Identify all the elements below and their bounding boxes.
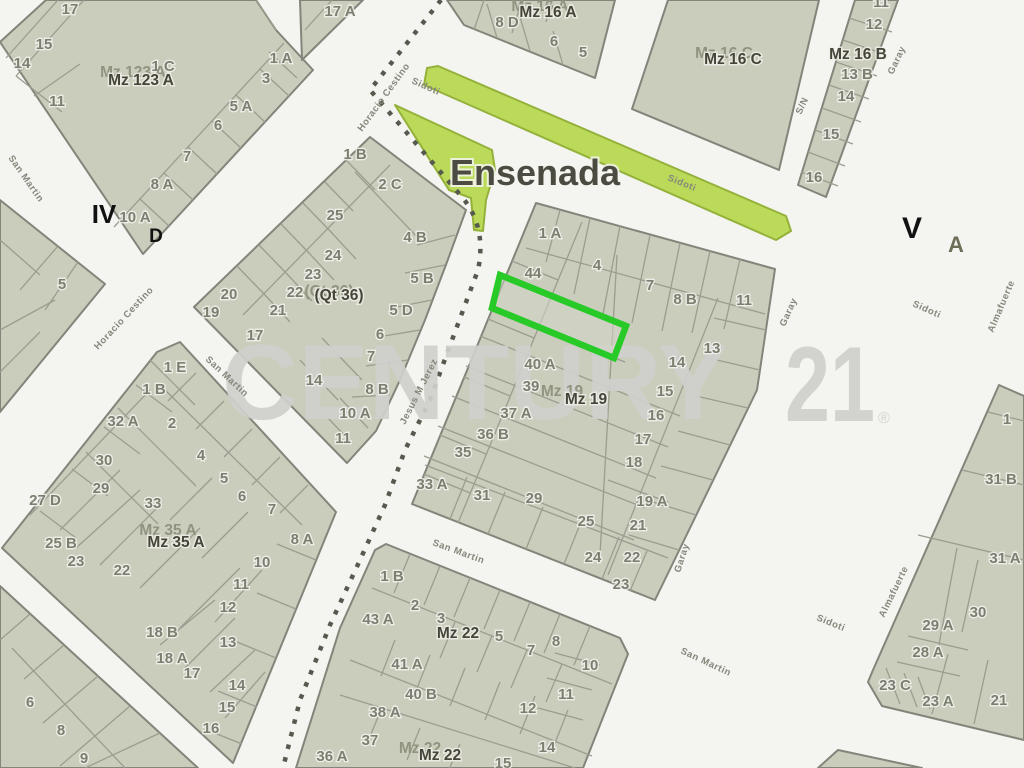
svg-text:13: 13: [220, 634, 237, 651]
svg-text:6: 6: [376, 326, 384, 343]
svg-text:23 C: 23 C: [879, 677, 911, 694]
svg-text:19 A: 19 A: [636, 493, 667, 510]
svg-text:5 A: 5 A: [230, 98, 253, 115]
svg-text:27 D: 27 D: [29, 492, 61, 509]
svg-text:14: 14: [14, 55, 31, 72]
svg-text:15: 15: [657, 383, 674, 400]
svg-text:5: 5: [58, 276, 66, 293]
svg-text:15: 15: [36, 36, 53, 53]
svg-text:11: 11: [49, 93, 65, 110]
svg-text:14: 14: [539, 739, 556, 756]
svg-text:Mz 16 C: Mz 16 C: [704, 51, 762, 68]
svg-text:21: 21: [270, 302, 287, 319]
svg-text:1 B: 1 B: [380, 568, 404, 585]
svg-text:10 A: 10 A: [339, 405, 370, 422]
svg-text:1 E: 1 E: [164, 359, 187, 376]
svg-text:30: 30: [96, 452, 113, 469]
svg-text:1 A: 1 A: [270, 50, 293, 67]
svg-text:2: 2: [168, 415, 176, 432]
svg-text:1: 1: [1003, 411, 1011, 428]
svg-text:5: 5: [579, 44, 587, 61]
svg-text:23: 23: [68, 553, 85, 570]
svg-text:43 A: 43 A: [362, 611, 393, 628]
svg-text:8: 8: [57, 722, 65, 739]
svg-text:Mz 16 B: Mz 16 B: [829, 46, 887, 63]
svg-text:6: 6: [550, 33, 558, 50]
svg-text:12: 12: [220, 599, 237, 616]
svg-text:6: 6: [238, 488, 246, 505]
svg-text:17: 17: [247, 327, 264, 344]
svg-text:CENTURY: CENTURY: [222, 322, 728, 442]
svg-text:12: 12: [520, 700, 537, 717]
svg-text:37 A: 37 A: [500, 405, 531, 422]
svg-text:®: ®: [878, 410, 890, 427]
svg-text:V: V: [902, 212, 922, 245]
svg-text:4: 4: [197, 447, 206, 464]
svg-text:10: 10: [254, 554, 271, 571]
svg-text:30: 30: [970, 604, 987, 621]
svg-text:39: 39: [523, 378, 540, 395]
svg-text:7: 7: [646, 277, 654, 294]
svg-text:Mz 35 A: Mz 35 A: [147, 534, 204, 551]
svg-text:38 A: 38 A: [369, 704, 400, 721]
svg-text:25 B: 25 B: [45, 535, 77, 552]
svg-text:21: 21: [991, 692, 1008, 709]
svg-text:(Qt 36): (Qt 36): [314, 287, 363, 304]
svg-text:8 B: 8 B: [673, 291, 697, 308]
svg-text:32 A: 32 A: [107, 413, 138, 430]
svg-text:1 B: 1 B: [142, 381, 166, 398]
svg-text:18: 18: [626, 454, 643, 471]
svg-text:Mz 22: Mz 22: [437, 625, 479, 642]
svg-text:18 B: 18 B: [146, 624, 178, 641]
svg-text:4: 4: [593, 257, 602, 274]
svg-text:14: 14: [229, 677, 246, 694]
svg-text:11: 11: [233, 576, 249, 593]
svg-text:IV: IV: [92, 199, 117, 229]
svg-text:Mz 16 A: Mz 16 A: [519, 4, 576, 21]
svg-text:6: 6: [26, 694, 34, 711]
svg-text:15: 15: [495, 755, 512, 768]
svg-text:16: 16: [648, 407, 665, 424]
svg-text:28 A: 28 A: [912, 644, 943, 661]
svg-text:22: 22: [114, 562, 131, 579]
svg-text:25: 25: [578, 513, 595, 530]
svg-text:2 C: 2 C: [378, 176, 402, 193]
svg-text:20: 20: [221, 286, 238, 303]
svg-text:5 B: 5 B: [410, 270, 434, 287]
svg-text:15: 15: [823, 126, 840, 143]
svg-text:13 B: 13 B: [841, 66, 873, 83]
svg-text:7: 7: [527, 642, 535, 659]
svg-text:23: 23: [613, 576, 630, 593]
svg-text:40 A: 40 A: [524, 356, 555, 373]
svg-text:3: 3: [262, 70, 270, 87]
svg-text:37: 37: [362, 732, 379, 749]
svg-text:13: 13: [704, 340, 721, 357]
svg-text:22: 22: [624, 549, 641, 566]
svg-text:Ensenada: Ensenada: [450, 152, 621, 193]
svg-text:8: 8: [552, 633, 560, 650]
svg-text:7: 7: [268, 501, 276, 518]
svg-text:15: 15: [219, 699, 236, 716]
svg-text:23 A: 23 A: [922, 693, 953, 710]
svg-text:10: 10: [582, 657, 599, 674]
svg-text:8 A: 8 A: [291, 531, 314, 548]
svg-text:5 D: 5 D: [389, 302, 413, 319]
svg-text:41 A: 41 A: [391, 656, 422, 673]
svg-text:36 B: 36 B: [477, 426, 509, 443]
svg-text:24: 24: [585, 549, 602, 566]
svg-text:7: 7: [367, 348, 375, 365]
svg-text:16: 16: [806, 169, 823, 186]
svg-text:29 A: 29 A: [922, 617, 953, 634]
svg-text:14: 14: [838, 88, 855, 105]
svg-text:6: 6: [214, 117, 222, 134]
svg-text:16: 16: [203, 720, 220, 737]
svg-text:19: 19: [203, 304, 220, 321]
svg-text:17: 17: [184, 665, 201, 682]
svg-text:33 A: 33 A: [416, 476, 447, 493]
svg-text:D: D: [149, 226, 163, 247]
svg-text:31: 31: [474, 487, 491, 504]
svg-text:7: 7: [183, 148, 191, 165]
svg-text:14: 14: [306, 372, 323, 389]
svg-text:11: 11: [736, 292, 752, 309]
svg-text:23: 23: [305, 266, 322, 283]
svg-text:11: 11: [873, 0, 889, 11]
svg-text:8 B: 8 B: [365, 381, 389, 398]
svg-text:2: 2: [411, 597, 419, 614]
svg-text:14: 14: [669, 354, 686, 371]
svg-text:8 A: 8 A: [151, 176, 174, 193]
svg-text:35: 35: [455, 444, 472, 461]
svg-text:Mz 123 A: Mz 123 A: [108, 72, 174, 89]
svg-text:21: 21: [785, 324, 875, 444]
svg-text:8 D: 8 D: [495, 14, 519, 31]
svg-text:21: 21: [630, 517, 647, 534]
svg-text:5: 5: [220, 470, 228, 487]
svg-text:1 A: 1 A: [539, 225, 562, 242]
svg-text:10 A: 10 A: [119, 209, 150, 226]
svg-text:33: 33: [145, 495, 162, 512]
svg-text:Mz 22: Mz 22: [419, 747, 461, 764]
svg-text:11: 11: [335, 430, 351, 447]
svg-text:31 A: 31 A: [989, 550, 1020, 567]
svg-text:24: 24: [325, 247, 342, 264]
svg-text:17: 17: [635, 431, 652, 448]
svg-text:Mz 19: Mz 19: [565, 391, 608, 408]
svg-text:25: 25: [327, 207, 344, 224]
svg-text:17: 17: [62, 1, 79, 18]
svg-text:17 A: 17 A: [324, 3, 355, 20]
svg-text:A: A: [948, 232, 964, 257]
svg-text:5: 5: [495, 628, 503, 645]
svg-text:40 B: 40 B: [405, 686, 437, 703]
svg-text:11: 11: [558, 686, 574, 703]
svg-text:22: 22: [287, 284, 304, 301]
svg-text:44: 44: [525, 265, 542, 282]
svg-text:12: 12: [866, 16, 883, 33]
svg-text:31 B: 31 B: [985, 471, 1017, 488]
svg-text:29: 29: [93, 480, 110, 497]
svg-text:29: 29: [526, 490, 543, 507]
svg-text:4 B: 4 B: [403, 229, 427, 246]
svg-text:1 B: 1 B: [343, 146, 367, 163]
svg-text:9: 9: [80, 750, 88, 767]
svg-text:36 A: 36 A: [316, 748, 347, 765]
